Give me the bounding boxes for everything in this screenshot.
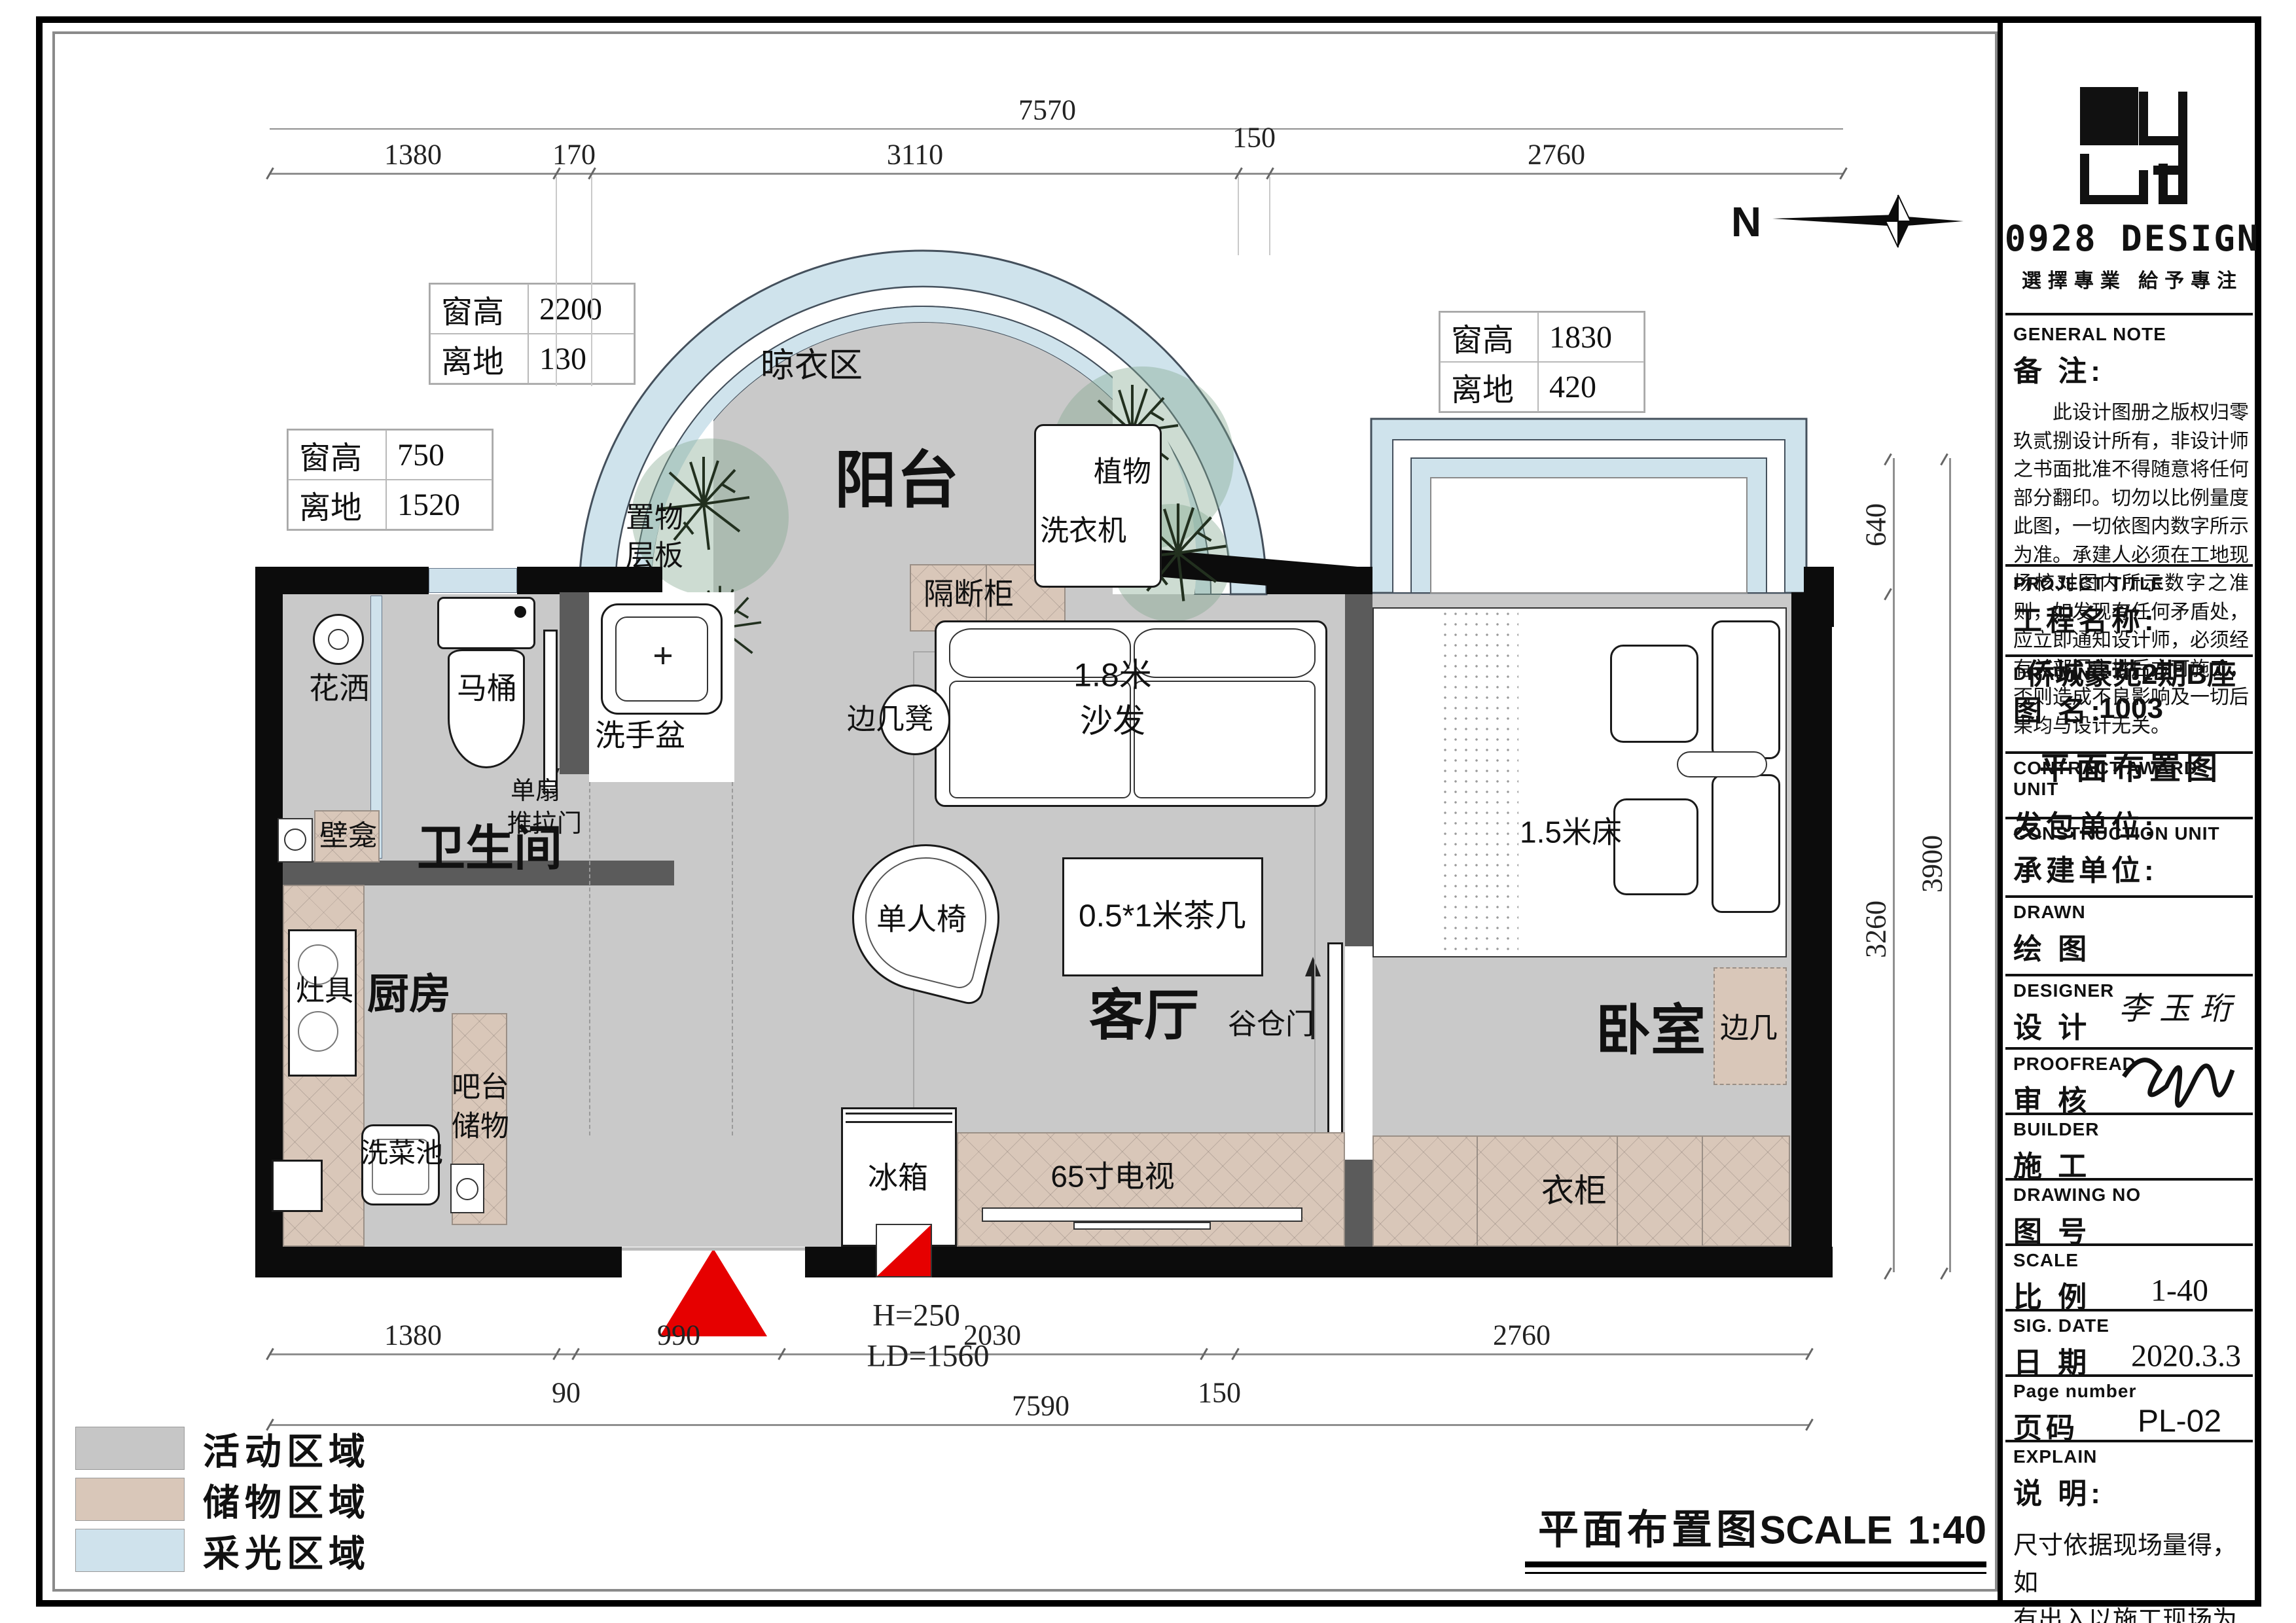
balcony-label: 阳台 xyxy=(834,445,959,516)
drying-area-label: 晾衣区 xyxy=(761,347,863,386)
washing-machine xyxy=(1034,424,1162,588)
barn-door-panel xyxy=(1327,942,1343,1165)
bed-dotted-strip xyxy=(1440,609,1518,956)
window-note-balcony: 窗高2200 离地130 xyxy=(429,283,636,385)
compass-icon xyxy=(1772,195,1964,247)
side-stool-label: 边几凳 xyxy=(847,704,933,737)
wardrobe-div-1 xyxy=(1477,1137,1478,1245)
drawing-title-en: DRAWING TITLE xyxy=(2013,664,2249,685)
armchair-label: 单人椅 xyxy=(876,902,967,937)
bed-bolster xyxy=(1677,751,1767,777)
drawing-no-en: DRAWING NO xyxy=(2013,1185,2249,1205)
dim-top-total: 7570 xyxy=(1018,94,1076,127)
scale-en: SCALE xyxy=(2013,1250,2249,1271)
dim-bottom-2: 990 xyxy=(657,1319,700,1352)
explain-line-2: 有出入以施工现场为准。 xyxy=(2013,1602,2249,1623)
niche-label: 壁龛 xyxy=(319,820,377,853)
note-cell: 离地 xyxy=(430,334,528,383)
shower-label: 花洒 xyxy=(309,671,369,706)
explain-en: EXPLAIN xyxy=(2013,1446,2249,1467)
dim-bottom-seg-line xyxy=(270,1353,1809,1355)
sliding-door-label-1: 单扇 xyxy=(511,777,560,806)
dim-top-seg-line xyxy=(270,173,1843,175)
north-label: N xyxy=(1731,198,1761,247)
dim-top-total-line xyxy=(270,128,1843,130)
fridge-top-lines xyxy=(846,1113,952,1123)
bedroom-label: 卧室 xyxy=(1596,999,1706,1063)
window-note-left: 窗高750 离地1520 xyxy=(287,429,493,531)
date-value: 2020.3.3 xyxy=(2131,1338,2241,1374)
tv-label: 65寸电视 xyxy=(1050,1160,1174,1194)
wall-top-a xyxy=(255,567,429,594)
drawing-title-zh: 图 名: xyxy=(2013,687,2249,729)
sheet-title: 平面布置图 xyxy=(1538,1507,1761,1553)
wall-bath-right xyxy=(560,592,589,774)
wardrobe-label: 衣柜 xyxy=(1541,1172,1607,1210)
legend-label-storage: 储物区域 xyxy=(203,1474,370,1527)
note-cell: 2200 xyxy=(528,284,634,334)
wall-divider-bottom xyxy=(1345,1160,1372,1247)
drawn-en: DRAWN xyxy=(2013,902,2249,923)
wall-right xyxy=(1791,592,1832,1277)
dim-bottom-4: 2760 xyxy=(1493,1319,1551,1352)
headboard-cushion-1 xyxy=(1712,620,1780,759)
tv-stand xyxy=(1073,1222,1211,1230)
note-cell: 130 xyxy=(528,334,634,383)
small-appliance-circle xyxy=(456,1178,478,1200)
partition-cabinet-label: 隔断柜 xyxy=(924,577,1014,612)
dim-right-1: 640 xyxy=(1859,503,1893,546)
dim-bottom-small-1: 90 xyxy=(552,1376,581,1410)
bar-label-1: 吧台 xyxy=(452,1071,509,1105)
sink-label: 洗菜池 xyxy=(361,1137,443,1169)
legend-swatch-daylight xyxy=(75,1529,185,1572)
note-cell: 1830 xyxy=(1538,312,1644,362)
shelf-label-1: 置物 xyxy=(626,502,683,535)
sofa-label-1: 1.8米 xyxy=(1073,656,1152,694)
shelf-label-2: 层板 xyxy=(626,540,683,573)
toilet-tank xyxy=(437,597,535,649)
dim-top-5: 2760 xyxy=(1528,138,1585,171)
dim-right-2: 3260 xyxy=(1859,901,1893,958)
headboard-cushion-2 xyxy=(1712,774,1780,913)
bedside-table-label: 边几 xyxy=(1720,1012,1778,1046)
sofa-seat-right xyxy=(1134,681,1316,798)
entry-marker xyxy=(876,1224,932,1277)
entry-height-note: H=250 xyxy=(872,1298,960,1334)
note-cell: 离地 xyxy=(1440,362,1538,412)
basin-faucet-icon-v xyxy=(662,647,664,664)
note-cell: 窗高 xyxy=(1440,312,1538,362)
wardrobe-div-2 xyxy=(1617,1137,1618,1245)
brand-tagline: 選擇專業 給予專注 xyxy=(2022,270,2243,293)
legend-swatch-storage xyxy=(75,1478,185,1521)
wardrobe-div-3 xyxy=(1702,1137,1703,1245)
note-cell: 窗高 xyxy=(288,430,386,480)
stove-burner-2 xyxy=(298,1011,338,1052)
bathroom-label: 卫生间 xyxy=(417,820,562,876)
toilet-button xyxy=(514,606,526,618)
sofa-label-2: 沙发 xyxy=(1080,702,1145,740)
sofa-back-right xyxy=(1134,628,1316,678)
note-cell: 750 xyxy=(386,430,492,480)
title-underline-thin xyxy=(1525,1572,1986,1574)
dim-right-outer-line xyxy=(1949,458,1951,1272)
sheet-scale-value: 1:40 xyxy=(1908,1508,1986,1553)
note-cell: 1520 xyxy=(386,480,492,529)
construction-unit-zh: 承建单位: xyxy=(2013,847,2249,889)
sheet-scale-word: SCALE xyxy=(1759,1508,1892,1553)
toilet-label: 马桶 xyxy=(457,671,517,706)
dim-top-3: 3110 xyxy=(887,138,943,171)
wall-divider-top xyxy=(1345,594,1372,946)
drawn-section: DRAWN 绘 图 xyxy=(2013,902,2249,967)
floor-plan-sheet: 晾衣区 阳台 置物 层板 植物 洗衣机 隔断柜 边几凳 1.8米 沙发 0.5*… xyxy=(0,0,2296,1623)
dim-top-2: 170 xyxy=(552,138,596,171)
bar-label-2: 储物 xyxy=(452,1111,509,1144)
bed-label: 1.5米床 xyxy=(1520,815,1622,850)
project-title-zh: 工程名称: xyxy=(2013,597,2249,639)
drain-circle xyxy=(284,829,306,851)
wall-top-right xyxy=(1266,567,1372,594)
page-number-en: Page number xyxy=(2013,1381,2249,1402)
bed-pillow-2 xyxy=(1613,798,1698,895)
general-note-zh: 备 注: xyxy=(2013,348,2249,389)
legend-swatch-activity xyxy=(75,1427,185,1470)
drawing-no-section: DRAWING NO 图 号 xyxy=(2013,1185,2249,1250)
dim-bottom-total: 7590 xyxy=(1012,1389,1069,1423)
construction-unit-section: CONSTRUCTION UNIT 承建单位: xyxy=(2013,823,2249,889)
date-en: SIG. DATE xyxy=(2013,1315,2249,1336)
builder-en: BUILDER xyxy=(2013,1119,2249,1140)
hallway-dashed-right xyxy=(732,782,733,1135)
entry-threshold xyxy=(622,1247,805,1251)
drawn-zh: 绘 图 xyxy=(2013,925,2249,967)
dim-top-1: 1380 xyxy=(384,138,442,171)
entry-ld-note: LD=1560 xyxy=(867,1338,989,1374)
note-cell: 窗高 xyxy=(430,284,528,334)
explain-line-1: 尺寸依据现场量得，如 xyxy=(2013,1527,2249,1602)
wall-bottom-b xyxy=(805,1247,1833,1277)
fridge-label: 冰箱 xyxy=(868,1161,928,1196)
page-number-value: PL-02 xyxy=(2138,1403,2221,1439)
tea-table-label: 0.5*1米茶几 xyxy=(1079,898,1246,934)
stove-label: 灶具 xyxy=(296,975,353,1008)
general-note-en: GENERAL NOTE xyxy=(2013,324,2249,345)
brand-name: 0928 DESIGN xyxy=(2005,219,2261,259)
scale-value: 1-40 xyxy=(2151,1272,2208,1308)
dim-right-inner-line xyxy=(1893,458,1895,1272)
basin-label: 洗手盆 xyxy=(595,719,685,753)
living-room-label: 客厅 xyxy=(1089,984,1199,1048)
designer-signature: 李玉珩 xyxy=(2119,991,2240,1027)
explain-section: EXPLAIN 说 明: 尺寸依据现场量得，如 有出入以施工现场为准。 xyxy=(2013,1446,2249,1623)
proofread-section: PROOFREAD 审 核 xyxy=(2013,1054,2249,1119)
wall-bottom-a xyxy=(255,1247,622,1277)
window-note-bedroom: 窗高1830 离地420 xyxy=(1439,311,1645,413)
note-cell: 离地 xyxy=(288,480,386,529)
construction-unit-en: CONSTRUCTION UNIT xyxy=(2013,823,2249,844)
legend-label-activity: 活动区域 xyxy=(203,1423,370,1476)
proofread-en: PROOFREAD xyxy=(2013,1054,2249,1075)
title-underline-thick xyxy=(1525,1561,1986,1567)
tv-screen xyxy=(982,1207,1302,1222)
window-top-left xyxy=(429,568,517,593)
plant-label: 植物 xyxy=(1094,456,1151,490)
legend-label-daylight: 采光区域 xyxy=(203,1525,370,1578)
hallway-dashed-left xyxy=(589,782,590,1135)
contract-unit-en: CONTRACT AWARD UNIT xyxy=(2013,758,2249,800)
bed-pillow-1 xyxy=(1610,645,1698,743)
washer-label: 洗衣机 xyxy=(1040,515,1126,548)
dim-bottom-small-2: 150 xyxy=(1198,1376,1241,1410)
entry-marker-red xyxy=(877,1225,931,1276)
barn-door-label: 谷仓门 xyxy=(1228,1008,1314,1042)
note-cell: 420 xyxy=(1538,362,1644,412)
explain-zh: 说 明: xyxy=(2013,1470,2249,1512)
builder-section: BUILDER 施 工 xyxy=(2013,1119,2249,1185)
scale-section: SCALE 比 例 xyxy=(2013,1250,2249,1315)
dim-bottom-total-line xyxy=(270,1424,1809,1426)
dim-top-4: 150 xyxy=(1232,121,1276,154)
dim-bottom-1: 1380 xyxy=(384,1319,442,1352)
dim-right-total: 3900 xyxy=(1916,835,1949,893)
project-title-en: PROJECT TITLE xyxy=(2013,573,2249,594)
bath-sliding-door xyxy=(543,630,558,793)
kitchen-door-leaf xyxy=(272,1160,323,1212)
toilet-bowl xyxy=(448,649,525,768)
kitchen-label: 厨房 xyxy=(367,971,451,1019)
shower-head-center xyxy=(328,629,349,650)
